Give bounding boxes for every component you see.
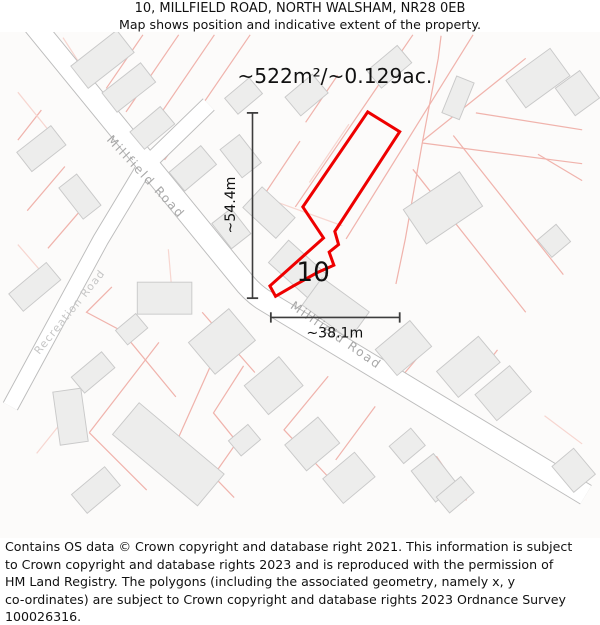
vertical-dimension-label: ~54.4m bbox=[223, 177, 239, 234]
copyright-footer: Contains OS data © Crown copyright and d… bbox=[0, 538, 600, 625]
footer-line-2: to Crown copyright and database rights 2… bbox=[0, 556, 600, 574]
footer-line-1: Contains OS data © Crown copyright and d… bbox=[0, 538, 600, 556]
map-canvas: Millfield RoadMillfield RoadRecreation R… bbox=[0, 32, 600, 538]
page-title: 10, MILLFIELD ROAD, NORTH WALSHAM, NR28 … bbox=[0, 0, 600, 17]
page-subtitle: Map shows position and indicative extent… bbox=[0, 17, 600, 32]
area-label: ~522m²/~0.129ac. bbox=[237, 64, 432, 88]
property-map: Millfield RoadMillfield RoadRecreation R… bbox=[0, 32, 600, 538]
footer-line-4: co-ordinates) are subject to Crown copyr… bbox=[0, 591, 600, 609]
footer-line-5: 100026316. bbox=[0, 608, 600, 625]
horizontal-dimension-label: ~38.1m bbox=[306, 326, 363, 342]
plot-number-label: 10 bbox=[296, 258, 330, 288]
building bbox=[137, 282, 192, 314]
footer-line-3: HM Land Registry. The polygons (includin… bbox=[0, 573, 600, 591]
header: 10, MILLFIELD ROAD, NORTH WALSHAM, NR28 … bbox=[0, 0, 600, 32]
